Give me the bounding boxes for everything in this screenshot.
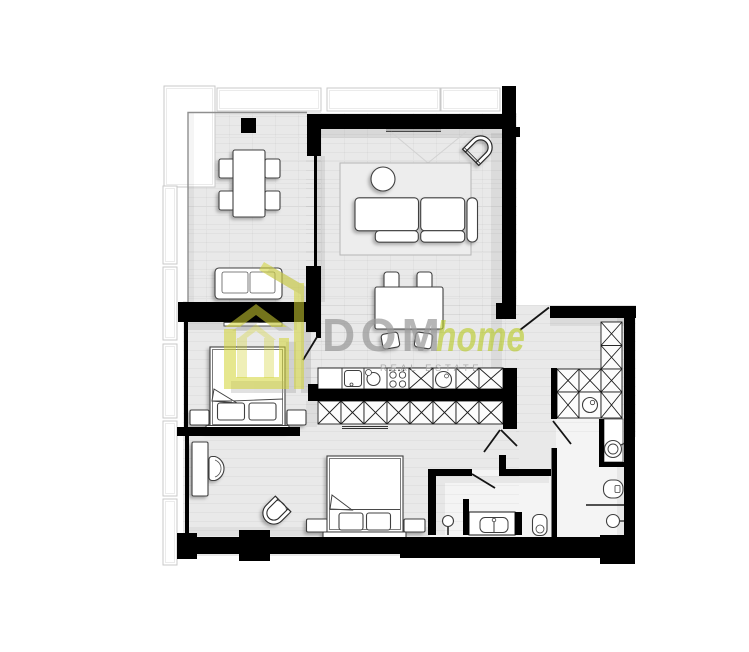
svg-text:DOM: DOM bbox=[322, 309, 440, 361]
svg-text:REAL ESTATE: REAL ESTATE bbox=[380, 363, 482, 374]
svg-text:home: home bbox=[436, 313, 525, 361]
